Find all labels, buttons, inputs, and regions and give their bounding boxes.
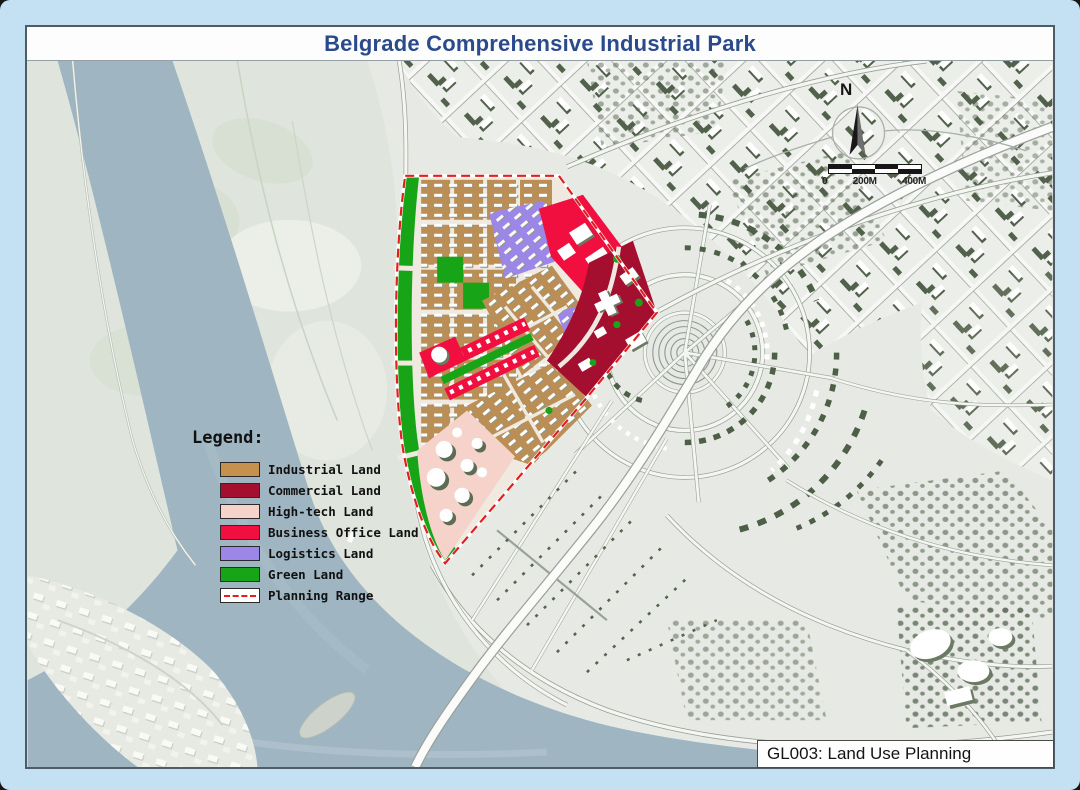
legend-item-industrial: Industrial Land bbox=[220, 462, 419, 477]
planning-range-swatch bbox=[220, 588, 260, 603]
business-office-swatch bbox=[220, 525, 260, 540]
legend-item-commercial: Commercial Land bbox=[220, 483, 419, 498]
map-sheet: Belgrade Comprehensive Industrial Park bbox=[0, 0, 1080, 790]
scale-label-0: 0 bbox=[822, 176, 827, 187]
drawing-number-box: GL003: Land Use Planning bbox=[757, 740, 1054, 768]
commercial-swatch bbox=[220, 483, 260, 498]
drawing-number-label: GL003: Land Use Planning bbox=[767, 744, 971, 764]
legend-item-logistics: Logistics Land bbox=[220, 546, 419, 561]
map-frame: Belgrade Comprehensive Industrial Park bbox=[25, 25, 1055, 769]
green-land-swatch bbox=[220, 567, 260, 582]
title-band: Belgrade Comprehensive Industrial Park bbox=[27, 27, 1053, 61]
page-title: Belgrade Comprehensive Industrial Park bbox=[324, 31, 756, 57]
scale-label-200m: 200M bbox=[853, 176, 877, 187]
scale-bar bbox=[828, 164, 922, 174]
scale-label-400m: 400M bbox=[902, 176, 926, 187]
scale-bar-labels: 0 200M 400M bbox=[822, 176, 926, 187]
north-label: N bbox=[840, 80, 852, 100]
legend-title: Legend: bbox=[192, 428, 419, 448]
hightech-swatch bbox=[220, 504, 260, 519]
logistics-swatch bbox=[220, 546, 260, 561]
dash-line-icon bbox=[224, 595, 257, 597]
legend-item-green: Green Land bbox=[220, 567, 419, 582]
legend-item-planning-range: Planning Range bbox=[220, 588, 419, 603]
legend-item-business-office: Business Office Land bbox=[220, 525, 419, 540]
industrial-swatch bbox=[220, 462, 260, 477]
legend: Legend: Industrial Land Commercial Land … bbox=[192, 428, 419, 609]
green-block bbox=[437, 257, 463, 283]
legend-item-hightech: High-tech Land bbox=[220, 504, 419, 519]
